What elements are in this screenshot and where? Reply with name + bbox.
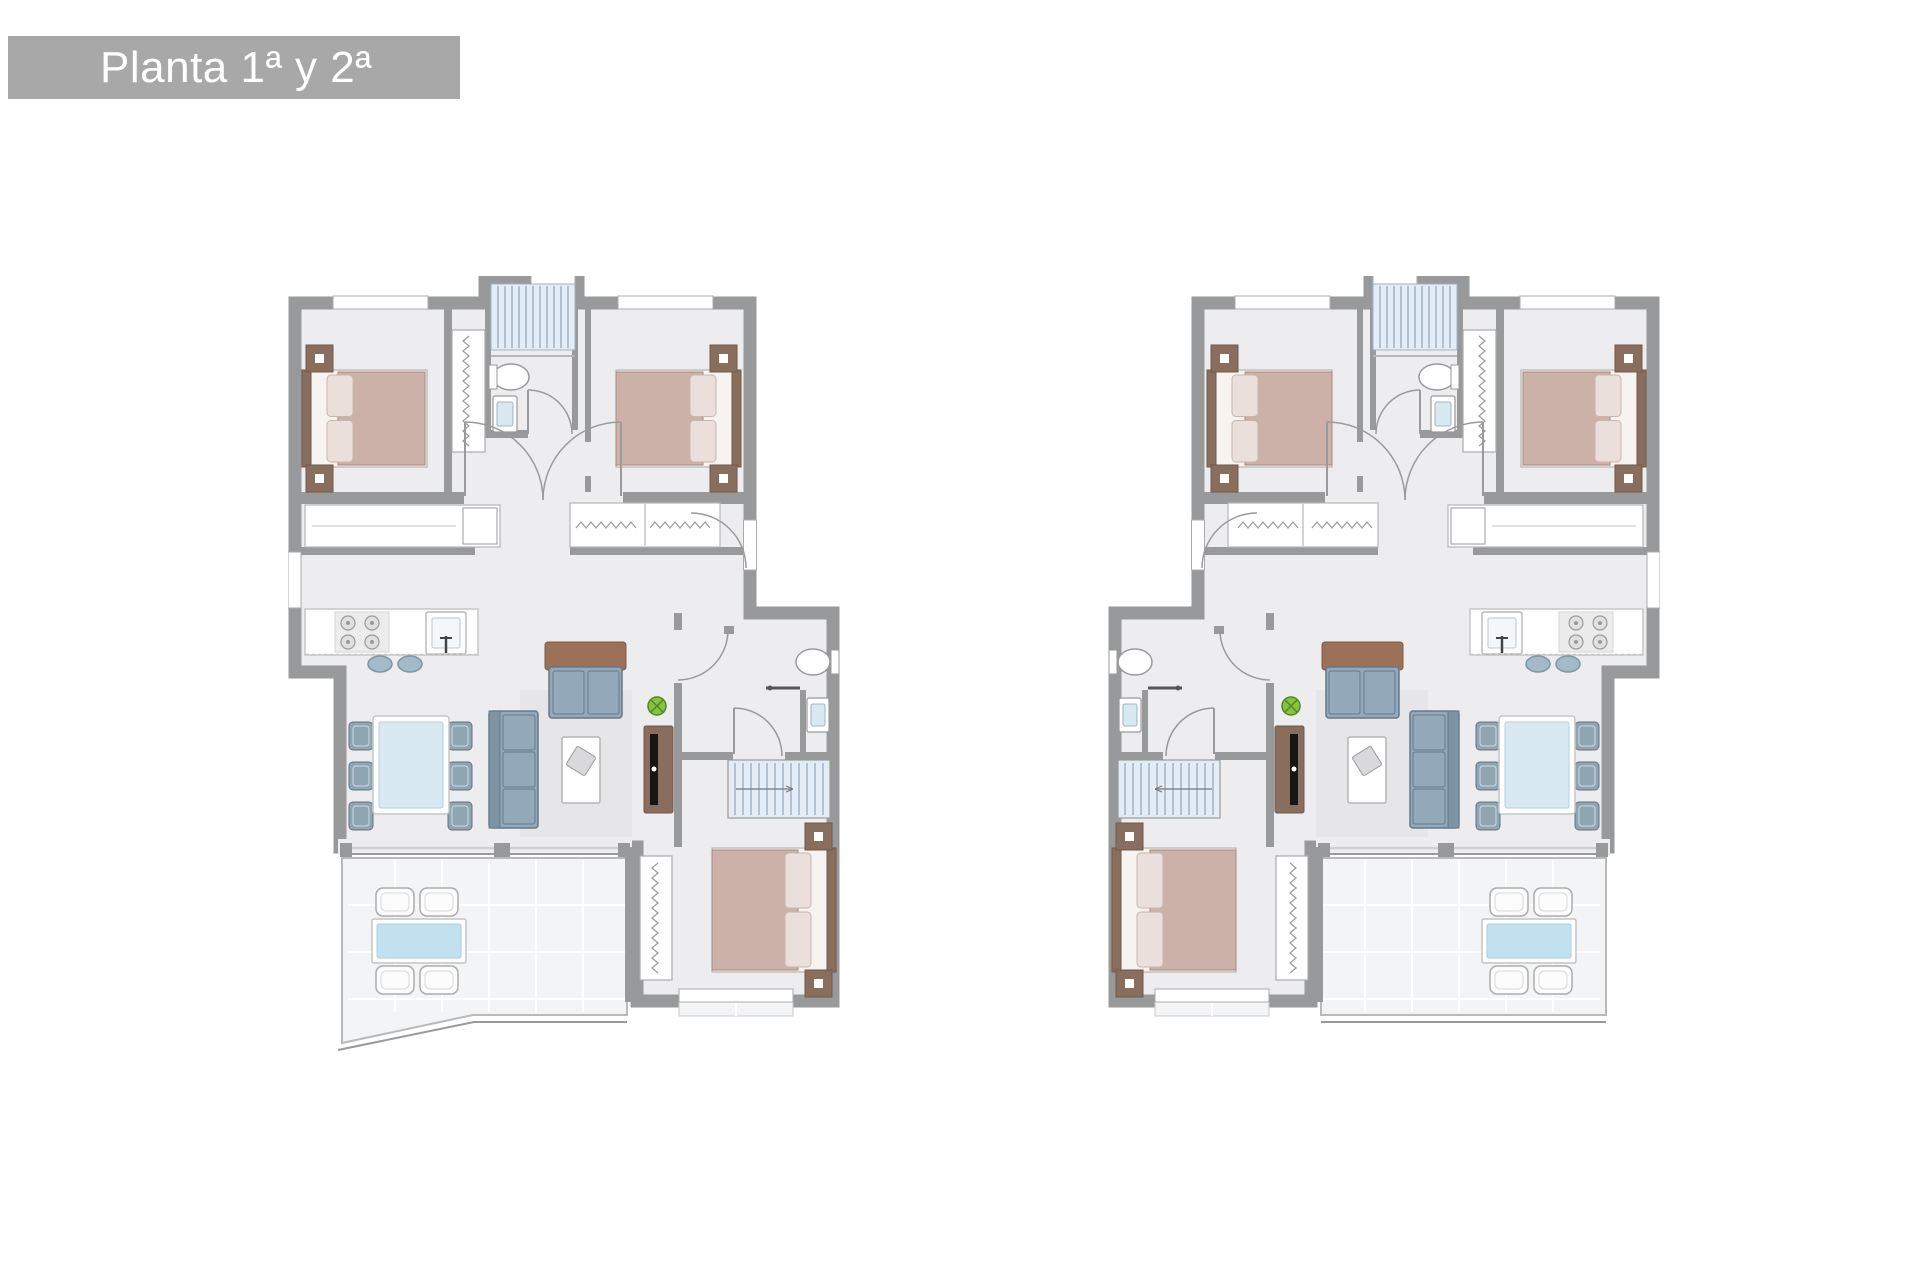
apartment-plan-left: [288, 276, 844, 1056]
coffee-table: [562, 737, 600, 803]
page-title: Planta 1ª y 2ª: [8, 43, 372, 93]
tv-console: [1275, 726, 1304, 813]
stairs-lower: [728, 760, 830, 818]
sofa-three-seat: [1410, 711, 1459, 828]
glass-wall: [338, 839, 632, 857]
stairs-lower: [1118, 760, 1220, 818]
plant: [1282, 697, 1300, 715]
closet: [1463, 330, 1496, 452]
tv-console: [644, 726, 673, 813]
apartment-plan-right: [1104, 276, 1660, 1056]
right-unit-svg: [1104, 276, 1660, 1056]
left-unit-svg: [288, 276, 844, 1056]
closet: [452, 330, 485, 452]
glass-wall: [1316, 839, 1610, 857]
plant: [648, 697, 666, 715]
title-bar: Planta 1ª y 2ª: [8, 36, 460, 99]
sofa-three-seat: [489, 711, 538, 828]
balcony-strip: [1155, 1002, 1269, 1016]
stairs-top: [1373, 284, 1457, 350]
dining-set: [349, 716, 472, 830]
coffee-table: [1348, 737, 1386, 803]
sofa-two-seat: [1322, 642, 1403, 718]
stairs-top: [491, 284, 575, 350]
dining-set: [1476, 716, 1599, 830]
double-bed: [1112, 823, 1236, 997]
balcony-strip: [679, 1002, 793, 1016]
bedroom-wardrobe: [1276, 856, 1308, 980]
sofa-two-seat: [545, 642, 626, 718]
bedroom-wardrobe: [640, 856, 672, 980]
double-bed: [712, 823, 836, 997]
floorplan-page: Planta 1ª y 2ª: [0, 0, 1920, 1280]
